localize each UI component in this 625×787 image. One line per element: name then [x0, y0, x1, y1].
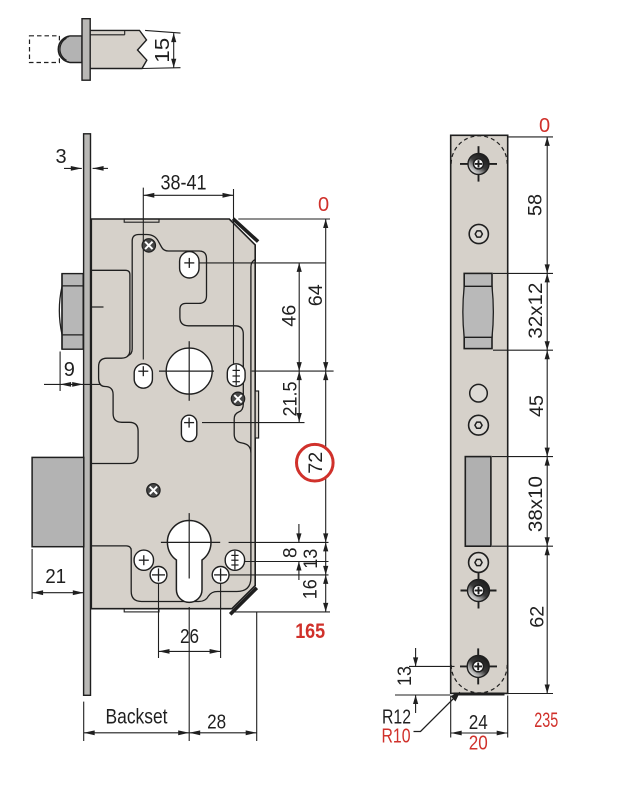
svg-text:62: 62	[527, 606, 548, 628]
svg-text:8: 8	[280, 547, 301, 558]
svg-text:38x10: 38x10	[526, 476, 547, 532]
svg-text:38-41: 38-41	[161, 172, 207, 195]
svg-text:Backset: Backset	[106, 706, 168, 729]
svg-text:21: 21	[45, 566, 66, 588]
svg-text:15: 15	[152, 38, 174, 63]
svg-text:64: 64	[306, 284, 327, 306]
svg-text:20: 20	[469, 733, 488, 755]
svg-text:0: 0	[318, 194, 329, 216]
svg-text:72: 72	[306, 452, 327, 474]
svg-text:3: 3	[55, 146, 66, 168]
svg-text:13: 13	[395, 666, 416, 686]
svg-text:16: 16	[301, 579, 322, 599]
svg-text:0: 0	[539, 115, 550, 137]
svg-text:45: 45	[527, 395, 548, 417]
svg-text:165: 165	[295, 620, 325, 643]
svg-text:24: 24	[469, 712, 488, 734]
svg-text:28: 28	[207, 712, 226, 734]
svg-text:235: 235	[534, 709, 558, 732]
svg-text:46: 46	[280, 305, 301, 327]
svg-text:21.5: 21.5	[280, 382, 301, 417]
svg-text:9: 9	[64, 359, 75, 381]
svg-text:58: 58	[525, 194, 546, 216]
svg-text:32x12: 32x12	[526, 283, 547, 339]
svg-text:R10: R10	[382, 726, 411, 748]
svg-text:13: 13	[301, 549, 322, 569]
